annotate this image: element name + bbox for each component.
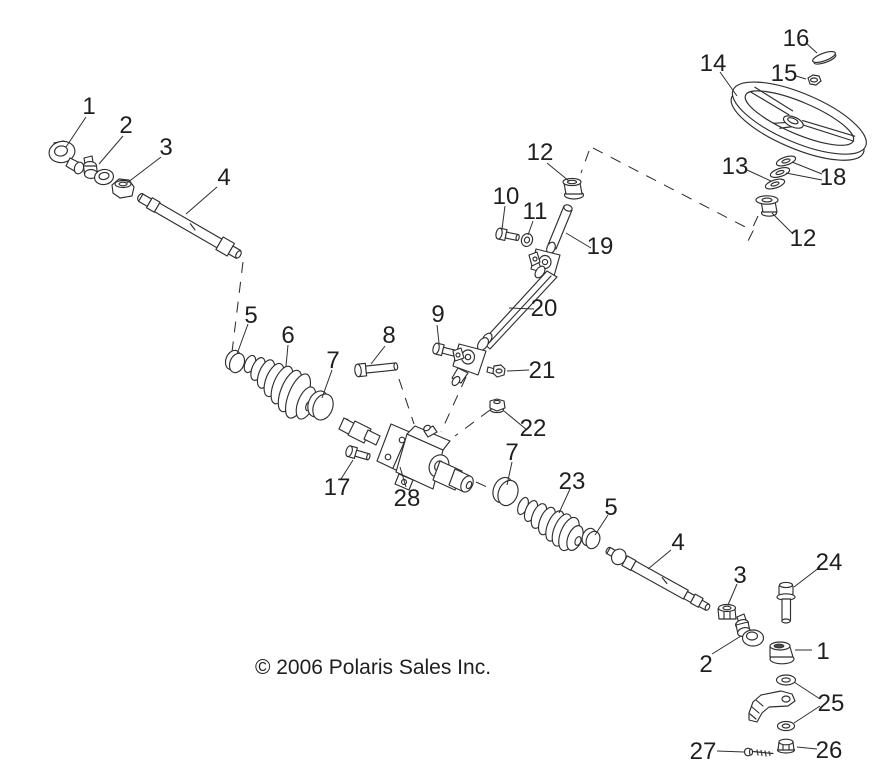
callout-8: 8 [382, 322, 395, 349]
callout-4-right: 4 [671, 529, 684, 556]
callout-28: 28 [394, 485, 421, 512]
callout-16: 16 [783, 25, 810, 52]
callout-12-column: 12 [527, 139, 554, 166]
parts-diagram-page: 1 2 3 4 5 6 7 8 9 10 11 12 12 13 14 15 1… [0, 0, 893, 777]
leader-lines [66, 43, 822, 752]
callout-15: 15 [771, 60, 798, 87]
part-nut-26 [778, 739, 795, 753]
callout-19: 19 [587, 233, 614, 260]
callout-5-left: 5 [244, 302, 257, 329]
callout-22: 22 [520, 415, 547, 442]
callout-3-right: 3 [733, 562, 746, 589]
callout-14: 14 [700, 50, 727, 77]
part-washers-13-18 [764, 154, 796, 191]
callout-13: 13 [722, 153, 749, 180]
callout-18: 18 [820, 164, 847, 191]
callout-6: 6 [281, 322, 294, 349]
callout-11: 11 [523, 198, 548, 225]
part-washer-11 [520, 232, 534, 248]
part-jam-nut-left [112, 179, 134, 198]
part-washer-left [223, 348, 247, 375]
part-nut-22 [490, 399, 505, 413]
copyright-text: © 2006 Polaris Sales Inc. [255, 656, 491, 679]
callout-3-left: 3 [159, 134, 172, 161]
callout-1-right: 1 [816, 638, 829, 665]
part-bushing-wheel [756, 196, 778, 216]
part-bracket-washers-25 [749, 675, 796, 731]
part-upper-steering-shaft [545, 204, 573, 255]
callout-9: 9 [431, 301, 444, 328]
callout-labels: 1 2 3 4 5 6 7 8 9 10 11 12 12 13 14 15 1… [82, 25, 846, 765]
diagram-canvas: 1 2 3 4 5 6 7 8 9 10 11 12 12 13 14 15 1… [0, 0, 893, 777]
part-ball-joint-right [735, 614, 764, 646]
part-jam-nut-right [718, 605, 736, 620]
callout-1-left: 1 [82, 93, 95, 120]
part-bolt-21 [487, 365, 505, 377]
part-bushing-column [563, 178, 584, 199]
callout-27: 27 [690, 738, 717, 765]
part-tie-rod-right [603, 543, 714, 614]
part-nut-15 [808, 75, 821, 85]
part-bushing-right [770, 642, 794, 664]
part-tie-rod-left [135, 190, 244, 262]
callout-24: 24 [816, 549, 843, 576]
part-clamp-right [489, 474, 521, 508]
callout-25: 25 [818, 690, 845, 717]
callout-5-right: 5 [604, 494, 617, 521]
callout-12-wheel: 12 [790, 225, 817, 252]
callout-2-left: 2 [119, 112, 132, 139]
part-bolt-24 [777, 582, 795, 623]
part-bolt-8 [354, 360, 398, 377]
part-tie-rod-end-left [47, 139, 85, 175]
callout-7-right: 7 [505, 439, 518, 466]
part-screw-27 [745, 748, 774, 756]
callout-26: 26 [816, 737, 843, 764]
part-boot-right [515, 496, 586, 553]
callout-2-right: 2 [699, 651, 712, 678]
part-ball-joint-left [84, 156, 115, 186]
callout-23: 23 [559, 468, 586, 495]
callout-17: 17 [324, 474, 351, 501]
callout-10: 10 [493, 183, 520, 210]
part-bolt-17 [345, 445, 372, 462]
callout-4-left: 4 [217, 164, 230, 191]
callout-21: 21 [529, 357, 556, 384]
callout-7-left: 7 [326, 347, 339, 374]
part-bolt-10 [495, 228, 520, 244]
callout-20: 20 [531, 295, 558, 322]
